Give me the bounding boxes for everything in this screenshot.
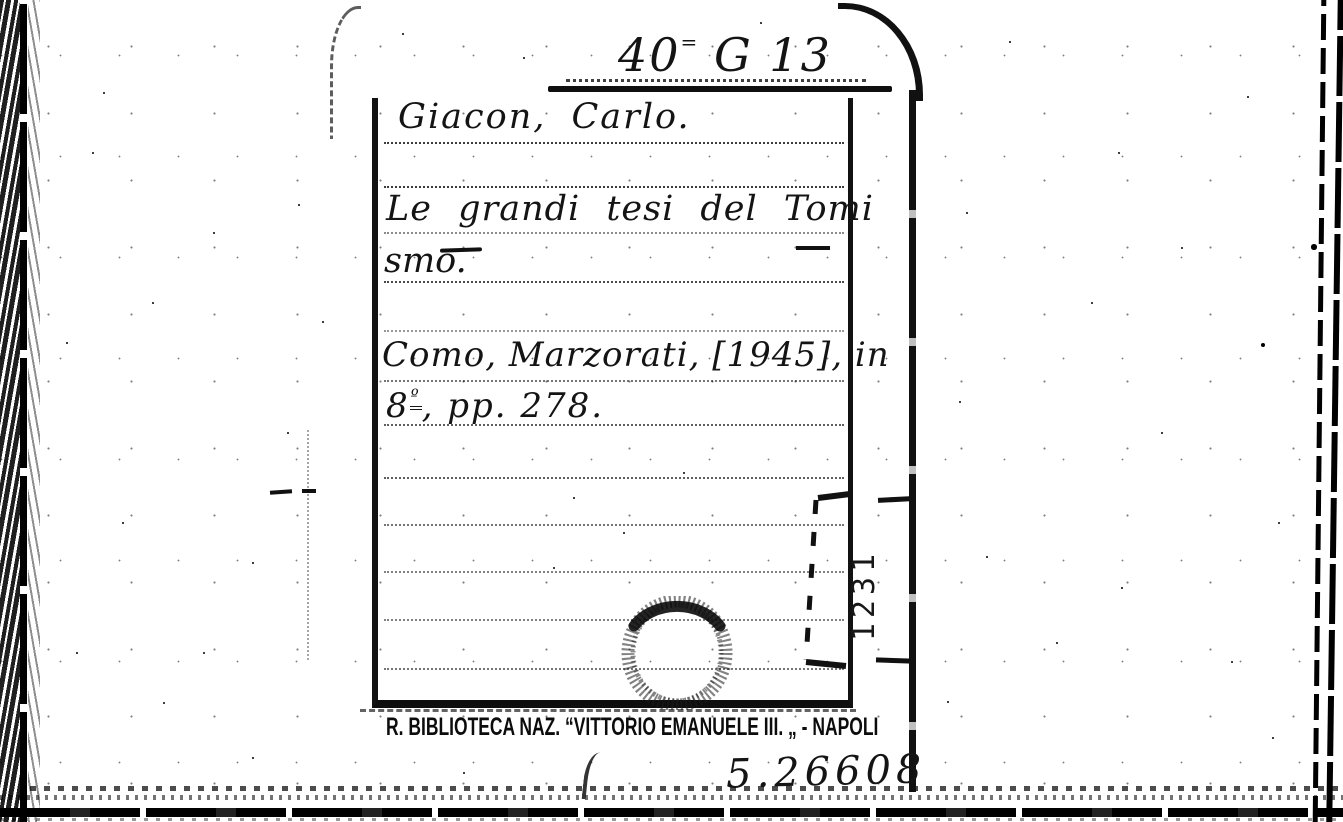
- stray-dot-trail: [307, 430, 309, 660]
- scan-noise-left-line: [20, 0, 27, 822]
- underline-mark-tomi: [796, 246, 830, 250]
- shelfmark-class: G 13: [714, 28, 832, 82]
- scan-noise-bottom-band: [0, 808, 1343, 817]
- ruled-line: [384, 524, 844, 526]
- accession-number: 5.26608: [726, 749, 927, 794]
- bracket-right-tick-top: [878, 496, 912, 503]
- scan-noise-bottom-dots3: [0, 818, 1343, 821]
- punch-hole-ring: [618, 596, 736, 710]
- shelfmark-dotted-underline: [566, 79, 866, 82]
- scan-noise-bottom-dots1: [30, 786, 1343, 791]
- shelfmark-number: 40: [618, 28, 681, 82]
- title-line-1: Le grandi tesi del Tomi: [386, 192, 874, 227]
- format-sup: º: [410, 386, 422, 410]
- imprint-line-2: 8º, pp. 278.: [386, 388, 604, 423]
- ruled-line: [384, 668, 844, 670]
- ruled-line: [384, 142, 844, 144]
- stray-dash-mark: [270, 489, 292, 495]
- library-stamp: R. BIBLIOTECA NAZ. “VITTORIO EMANUELE II…: [386, 714, 878, 743]
- scan-noise-right-line1: [1313, 0, 1327, 822]
- scanned-catalog-card: 40= G 13 Giacon, Carlo. Le grandi tesi d…: [0, 0, 1343, 822]
- ruled-line: [384, 232, 844, 234]
- scan-noise-left-soft: [28, 0, 40, 822]
- shelfmark-solid-underline: [548, 86, 892, 92]
- shelfmark-sup-mark: =: [681, 30, 698, 54]
- scan-noise-bottom-dots2: [0, 795, 1343, 800]
- ruled-line: [384, 571, 844, 573]
- ruled-line: [384, 281, 844, 283]
- side-number: 1231: [850, 539, 880, 651]
- imprint-line-2-rest: , pp. 278.: [422, 386, 604, 426]
- footer-dashed-line: [360, 709, 856, 712]
- author-line: Giacon, Carlo.: [398, 100, 691, 135]
- underline-mark-grandi: [440, 247, 482, 252]
- ruled-line: [384, 380, 844, 382]
- ruled-line: [384, 330, 844, 332]
- imprint-line-1: Como, Marzorati, [1945], in: [382, 338, 890, 372]
- card-edge-right: [909, 90, 916, 792]
- pencil-stroke-mark: [582, 751, 605, 801]
- scan-noise-left: [0, 0, 20, 822]
- ruled-line: [384, 477, 844, 479]
- ruled-line: [384, 186, 844, 188]
- scan-speck-dots: [0, 0, 2, 2]
- shelfmark: 40= G 13: [618, 32, 832, 78]
- scan-noise-right-line2: [1326, 0, 1343, 822]
- stray-dash-mark: [302, 489, 316, 493]
- ruled-box: Giacon, Carlo. Le grandi tesi del Tomi s…: [372, 98, 853, 708]
- bracket-right-tick-bottom: [876, 657, 912, 663]
- ruled-line: [384, 619, 844, 621]
- format-digit: 8: [386, 386, 410, 426]
- card-corner-top-left: [330, 6, 361, 139]
